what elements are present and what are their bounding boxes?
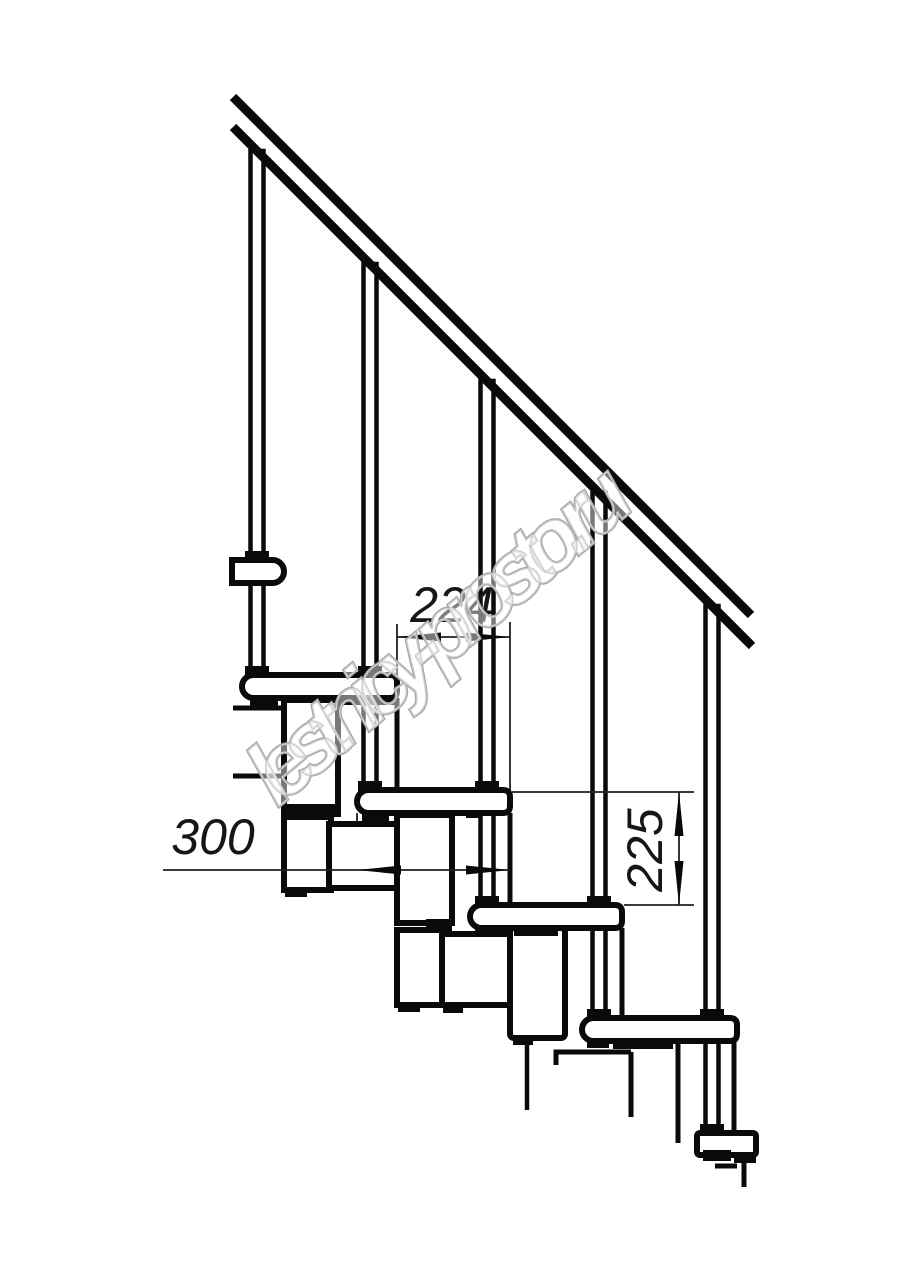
tread-2-tab-left [362,811,389,821]
baluster-3-collar [475,781,499,790]
module-2-foot-tab-right [443,1004,463,1013]
baluster-5-collar [700,1009,724,1018]
baluster-1-collar [245,551,269,560]
module-1-foot-tab [285,888,307,897]
tread-3-tab-left [475,926,500,936]
module-3-foot-tab [513,1036,533,1045]
baluster-2-foot [358,781,382,791]
baluster-4-foot [587,1009,611,1019]
tread-4-tab-left [587,1039,609,1048]
tread-0-cut [232,560,284,583]
dim-label-300: 300 [171,809,255,865]
module-2-foot-tab [398,1003,420,1012]
module-2-lower-box [397,930,444,1005]
tread-4 [582,1018,737,1041]
module-3-upper-box [510,928,565,1038]
baluster-1 [251,151,264,677]
baluster-4-collar [587,896,611,905]
tread-2-tab-right [466,811,482,818]
tread-3 [470,905,622,928]
module-1-lower-box [284,817,331,890]
tread-5-tab-left [703,1150,731,1161]
module-2-upper-box [397,815,452,923]
baluster-3-foot [475,896,499,906]
baluster-4 [593,493,606,1020]
tread-4-tab-right [613,1040,673,1049]
baluster-5-foot [700,1124,724,1134]
tread-1-tab-left [250,696,278,706]
baluster-5 [706,606,719,1135]
drawing-canvas: 224 300 225 lestnicy-prosto.ru [0,0,914,1280]
tread-2 [357,790,510,813]
staircase-technical-drawing: 224 300 225 lestnicy-prosto.ru [0,0,914,1280]
tread-3-tab-right [514,927,558,936]
dim-label-225: 225 [617,808,673,893]
baluster-1-foot [245,666,269,676]
